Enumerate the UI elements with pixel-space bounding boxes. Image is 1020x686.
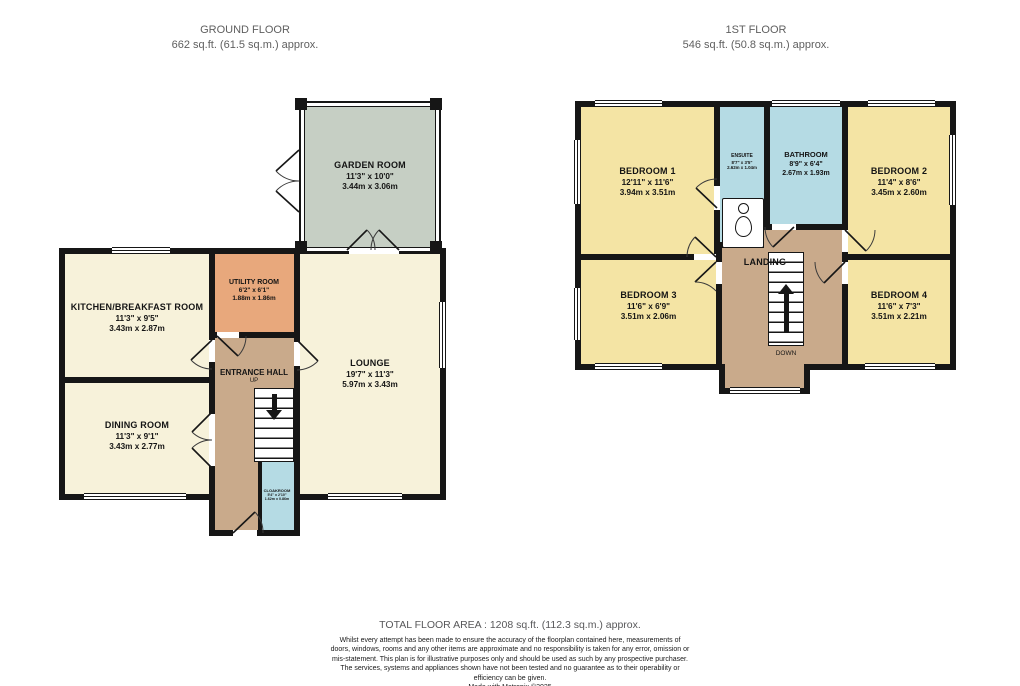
window (574, 288, 581, 340)
floorplan-canvas: GROUND FLOOR 662 sq.ft. (61.5 sq.m.) app… (0, 0, 1020, 686)
window (772, 100, 840, 107)
window (328, 493, 402, 500)
total-floor-area: TOTAL FLOOR AREA : 1208 sq.ft. (112.3 sq… (260, 619, 760, 631)
door-leaf (276, 191, 299, 212)
footer: TOTAL FLOOR AREA : 1208 sq.ft. (112.3 sq… (260, 619, 760, 686)
door-swing (276, 171, 299, 181)
room-bedroom4 (848, 260, 950, 364)
disclaimer-text: Whilst every attempt has been made to en… (330, 636, 690, 683)
door-opening (694, 254, 716, 260)
room-bedroom1 (581, 107, 714, 254)
ensuite-fixtures (722, 198, 764, 248)
door-opening (349, 248, 399, 254)
door-opening (842, 230, 848, 252)
room-utility (215, 254, 294, 332)
garden-room-glazing (304, 106, 436, 248)
door-swing (276, 181, 299, 191)
ground-floor-title: GROUND FLOOR (95, 23, 395, 38)
first-floor-header: 1ST FLOOR 546 sq.ft. (50.8 sq.m.) approx… (606, 23, 906, 53)
window (949, 135, 956, 205)
window (112, 247, 170, 254)
window (730, 387, 800, 394)
window (574, 140, 581, 204)
door-opening (294, 342, 300, 366)
room-landing-ext (725, 358, 804, 388)
door-opening (209, 340, 215, 362)
room-lounge (300, 254, 440, 494)
sink-icon (738, 203, 749, 214)
room-kitchen (65, 254, 209, 377)
door-opening (842, 262, 848, 284)
front-door-opening (233, 530, 257, 536)
ground-floor-area: 662 sq.ft. (61.5 sq.m.) approx. (95, 38, 395, 53)
window (595, 100, 662, 107)
stairs-down-label: DOWN (766, 350, 806, 357)
door-opening (716, 262, 722, 284)
stairs-direction-arrow (266, 394, 282, 420)
room-bedroom2 (848, 107, 950, 254)
stairs-direction-arrow (778, 284, 794, 332)
room-bedroom3 (581, 260, 716, 364)
garden-corner-post (295, 241, 307, 253)
ground-floor-header: GROUND FLOOR 662 sq.ft. (61.5 sq.m.) app… (95, 23, 395, 53)
garden-corner-post (430, 98, 442, 110)
door-opening (772, 224, 796, 230)
first-floor-area: 546 sq.ft. (50.8 sq.m.) approx. (606, 38, 906, 53)
window (595, 363, 662, 370)
toilet-icon (735, 216, 752, 237)
door-leaf (276, 150, 299, 171)
window (865, 363, 935, 370)
room-bathroom (770, 107, 842, 224)
first-floor-title: 1ST FLOOR (606, 23, 906, 38)
window (84, 493, 186, 500)
room-cloakroom (258, 462, 294, 530)
room-garden-room (299, 101, 441, 253)
door-opening (714, 186, 720, 210)
window (439, 302, 446, 368)
garden-corner-post (430, 241, 442, 253)
door-opening (209, 414, 215, 466)
room-dining (65, 383, 209, 494)
garden-corner-post (295, 98, 307, 110)
window (868, 100, 935, 107)
door-opening (217, 332, 239, 338)
